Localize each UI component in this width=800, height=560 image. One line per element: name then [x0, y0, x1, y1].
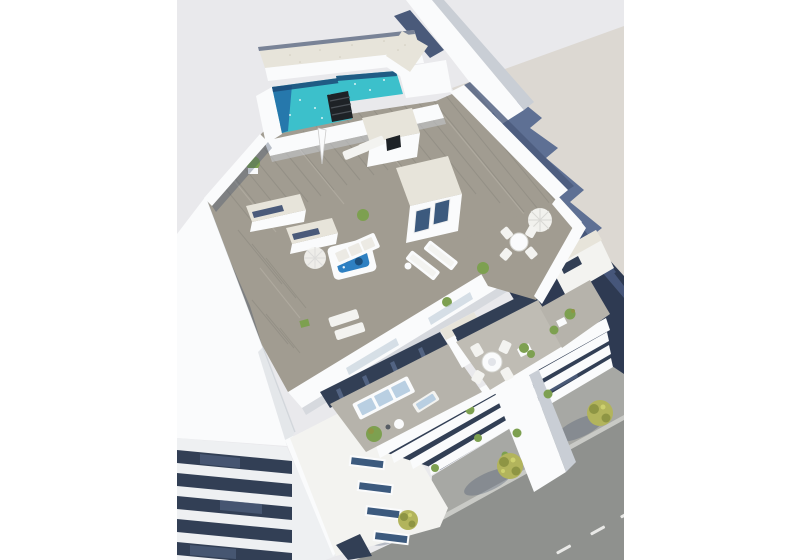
glass-door — [414, 207, 431, 233]
coffee-table — [394, 419, 404, 429]
round-table — [510, 233, 528, 251]
terrace-plant — [366, 426, 382, 442]
glass-door — [433, 199, 450, 225]
tree — [587, 400, 613, 426]
potted-plant — [357, 209, 369, 221]
tree — [497, 453, 523, 479]
potted-plant — [477, 262, 489, 274]
side-table — [386, 425, 391, 430]
tree — [398, 510, 418, 530]
architectural-rendering — [0, 0, 800, 560]
